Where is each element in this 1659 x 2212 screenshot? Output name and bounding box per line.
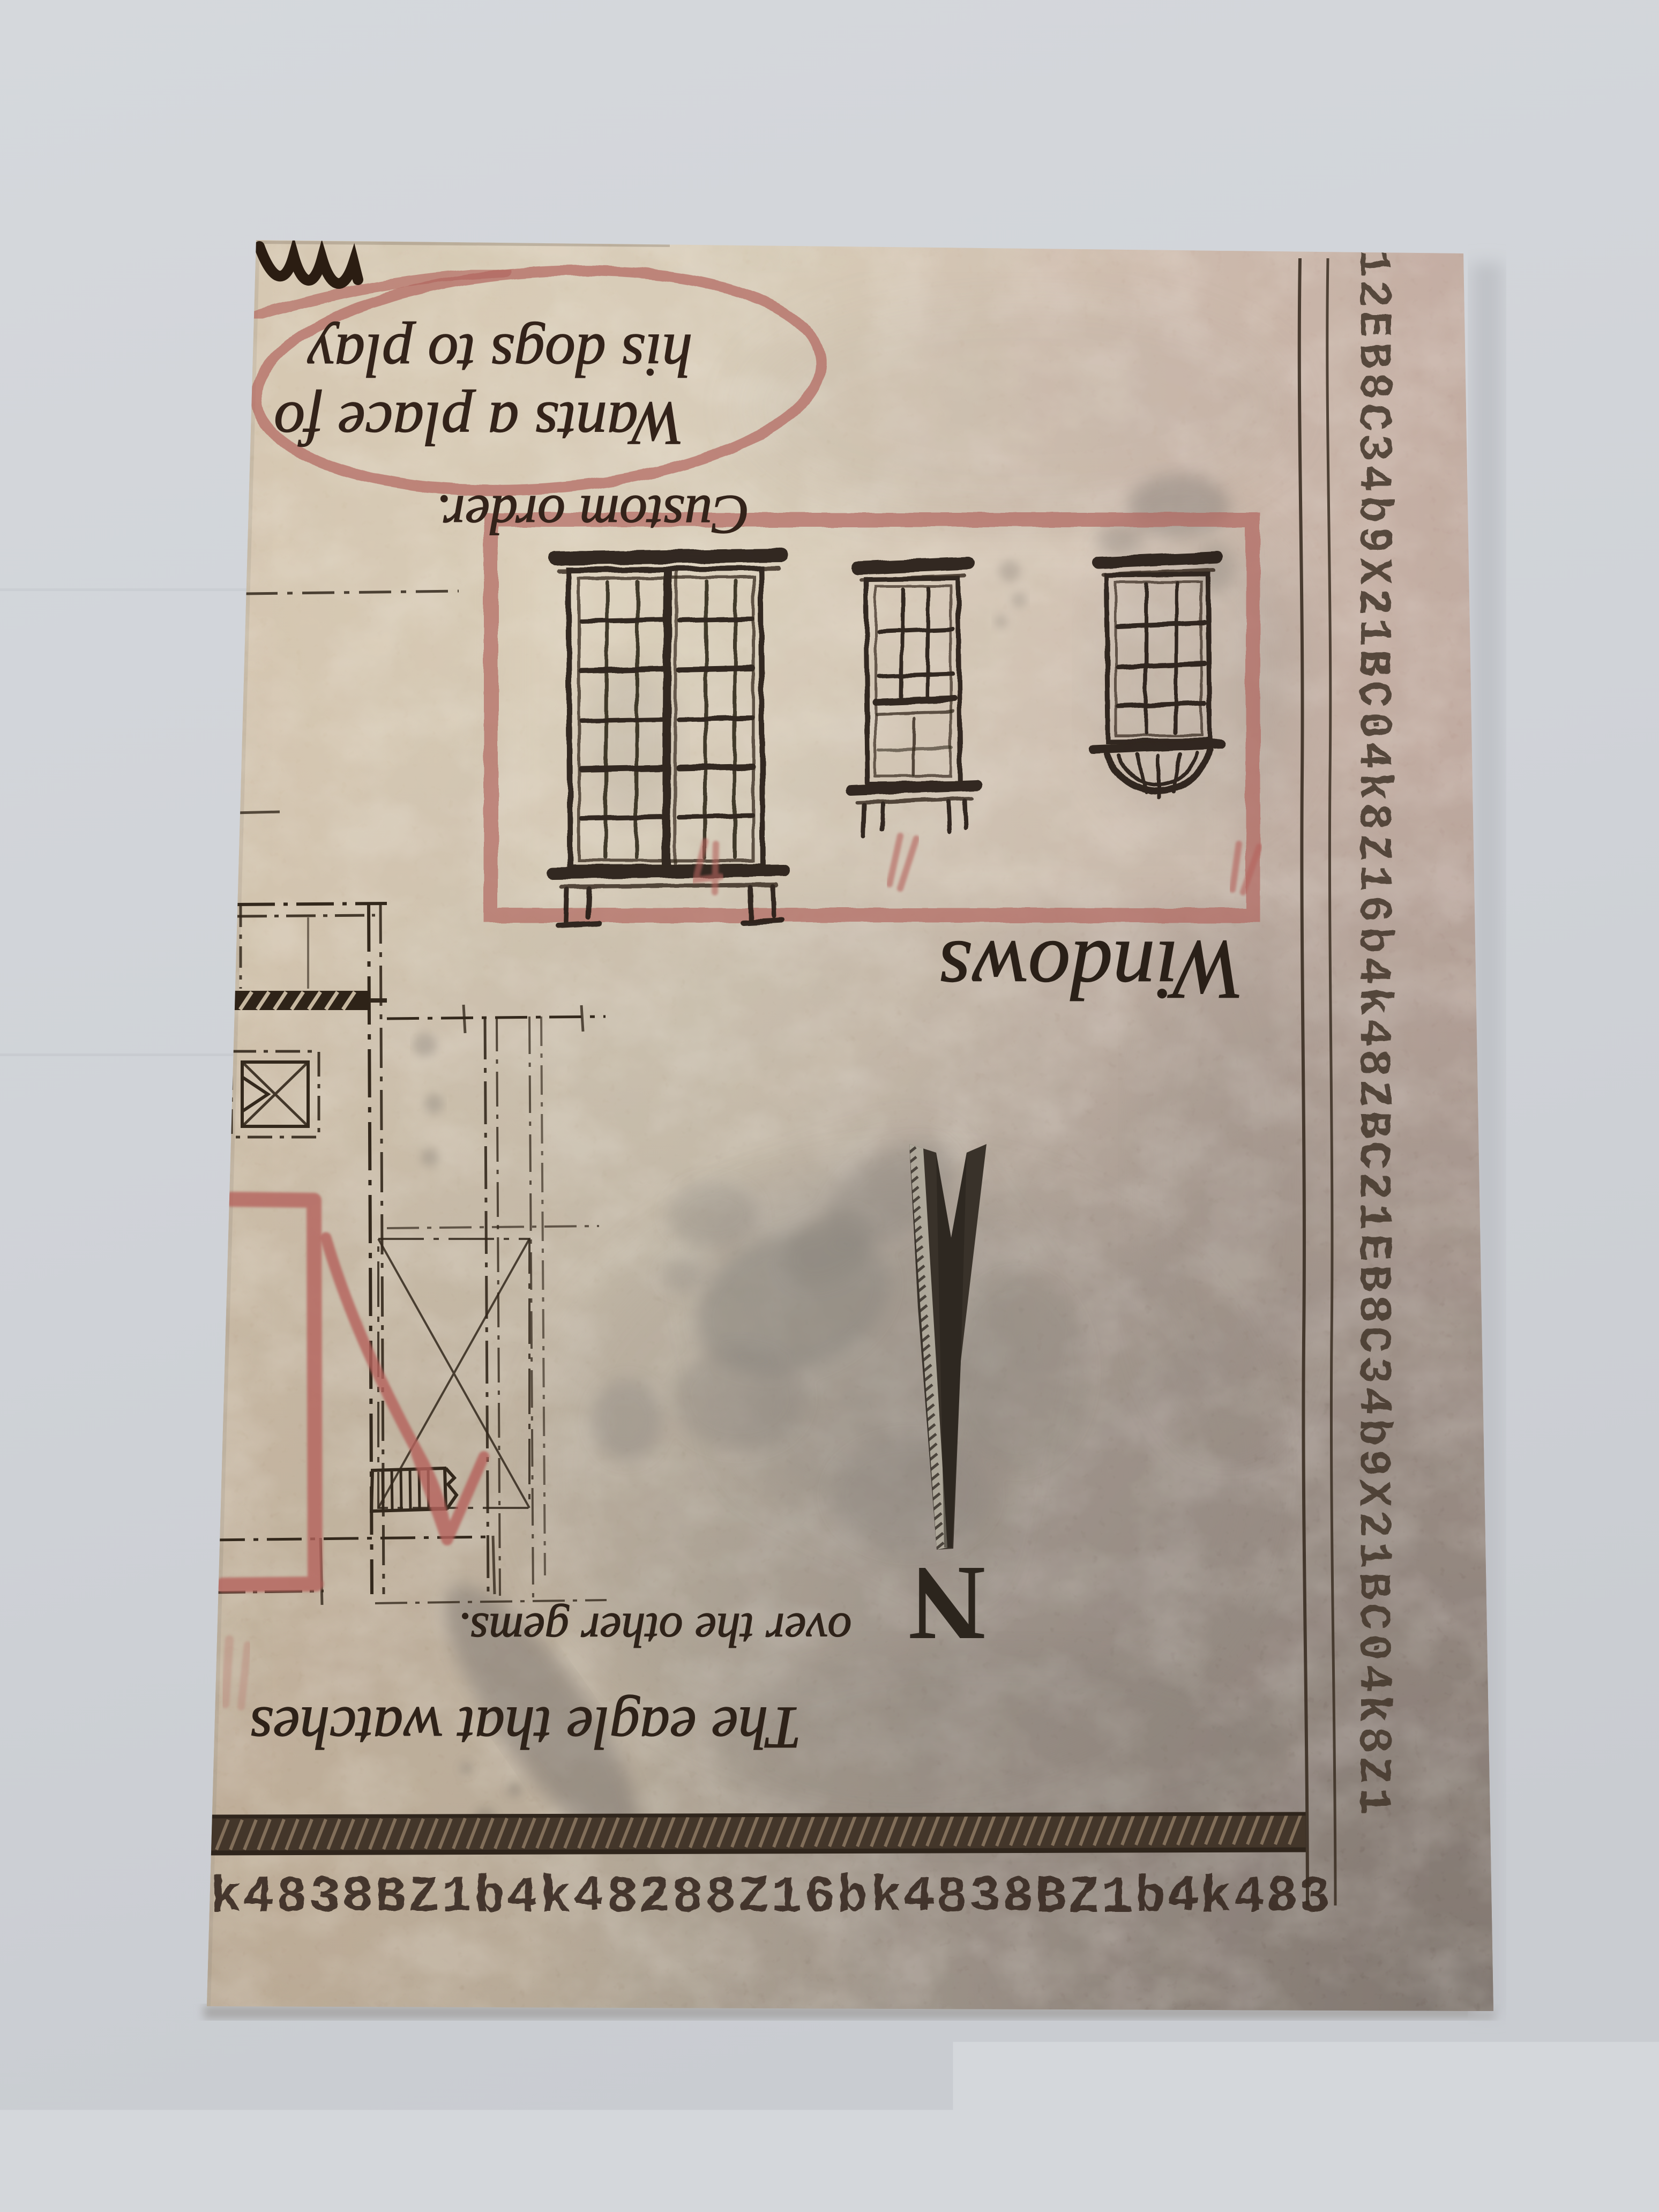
svg-text:The eagle that watches: The eagle that watches bbox=[250, 1694, 802, 1761]
svg-text:Wants a place fo: Wants a place fo bbox=[274, 389, 684, 458]
svg-text:his dogs to play: his dogs to play bbox=[307, 322, 692, 390]
svg-text:over the other gems.: over the other gems. bbox=[458, 1603, 852, 1656]
svg-text:N: N bbox=[909, 1544, 986, 1663]
svg-text:Custom order.: Custom order. bbox=[436, 484, 750, 545]
svg-text:Windows: Windows bbox=[939, 923, 1245, 1017]
svg-text:12EB8C34b9X21BC04k8Z16b4k48ZBC: 12EB8C34b9X21BC04k8Z16b4k48ZBC21EB8C34b9… bbox=[1347, 250, 1398, 1819]
svg-text:k4838BZ1b4k48288Z16bk4838BZ1b4: k4838BZ1b4k48288Z16bk4838BZ1b4k483 bbox=[210, 1868, 1333, 1926]
